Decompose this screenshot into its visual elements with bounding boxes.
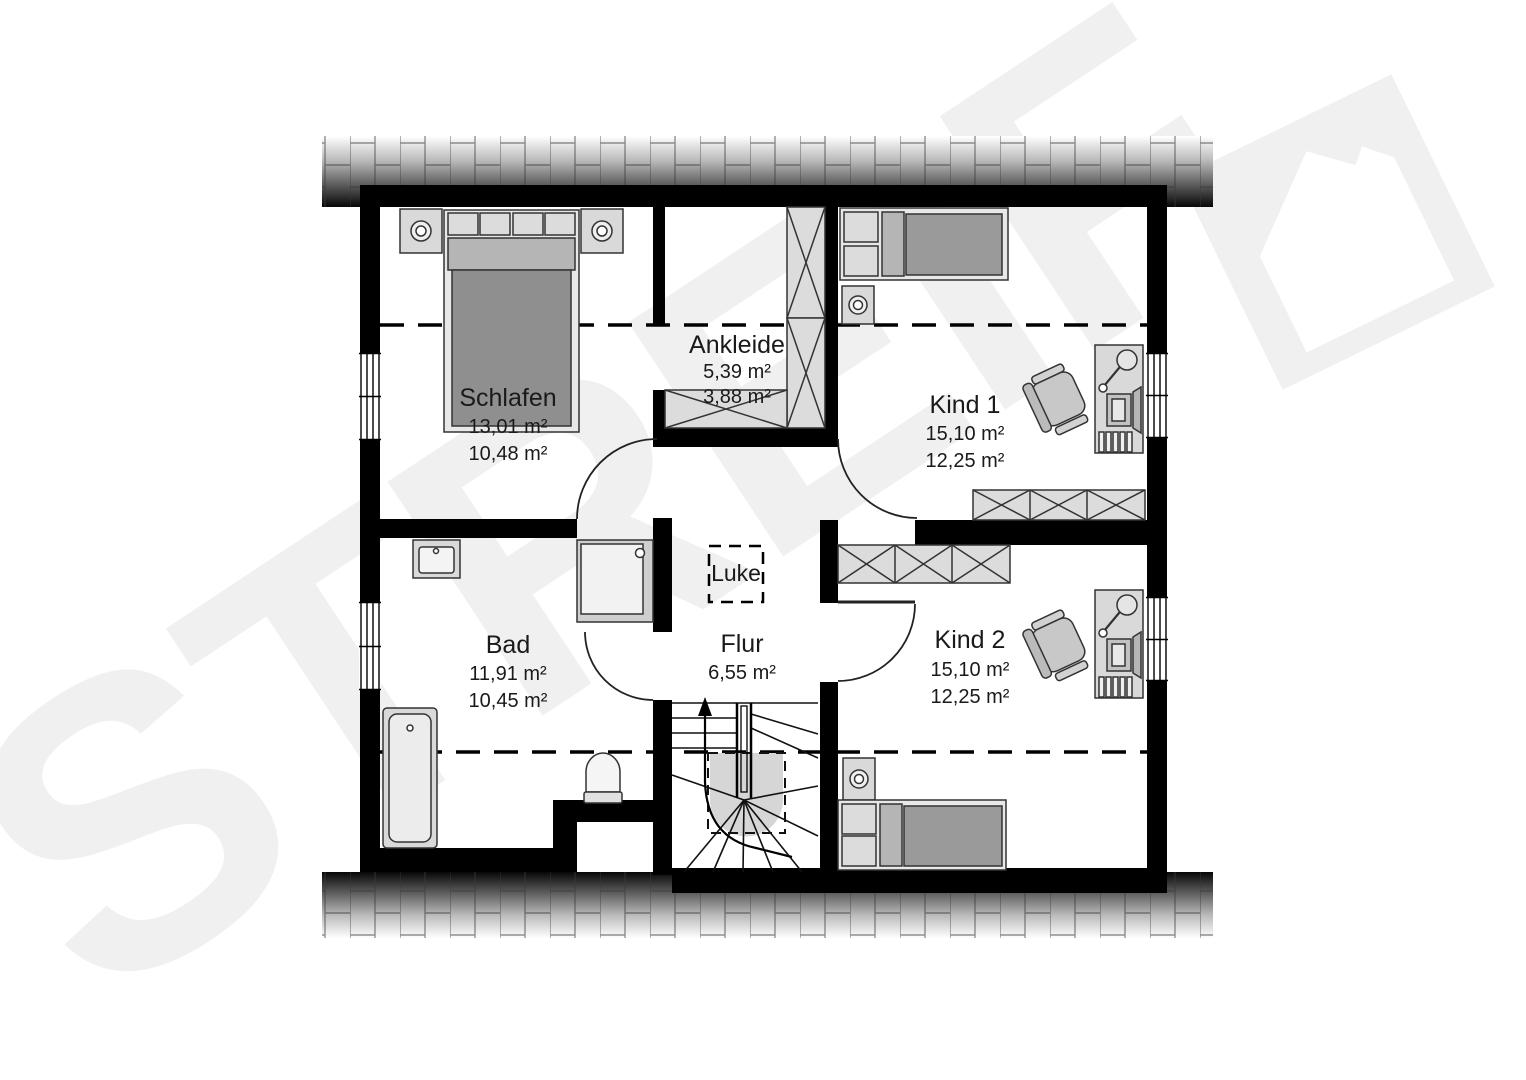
desk bbox=[1095, 590, 1143, 698]
room-name: Ankleide bbox=[689, 331, 785, 359]
room-label-kind2: Kind 2 15,10 m² 12,25 m² bbox=[931, 626, 1010, 708]
room-area-floor: 10,48 m² bbox=[469, 443, 548, 465]
window-kind1 bbox=[1146, 353, 1168, 438]
room-label-kind1: Kind 1 15,10 m² 12,25 m² bbox=[926, 391, 1005, 472]
floor-plan-drawing: STREIF bbox=[0, 0, 1526, 1080]
room-area-living: 15,10 m² bbox=[931, 659, 1010, 681]
single-bed bbox=[838, 800, 1006, 870]
window-schlafen bbox=[359, 353, 381, 440]
wall-flur-east-upper bbox=[820, 520, 838, 603]
single-bed bbox=[840, 208, 1008, 280]
sink bbox=[413, 540, 460, 578]
wall-schlafen-bad bbox=[360, 519, 577, 538]
desk-lamp-icon bbox=[1117, 595, 1137, 615]
wall-bad-bottom bbox=[360, 848, 577, 872]
wall-ankleide-bottom bbox=[653, 428, 838, 447]
wall-flur-west-upper bbox=[653, 518, 672, 632]
toilet bbox=[584, 753, 622, 803]
room-area-living: 11,91 m² bbox=[469, 663, 547, 685]
room-name: Bad bbox=[486, 631, 530, 659]
window-kind2 bbox=[1146, 597, 1168, 681]
nightstand bbox=[842, 286, 874, 324]
shower-drain-icon bbox=[636, 549, 645, 558]
shower bbox=[577, 540, 653, 622]
room-area-floor: 12,25 m² bbox=[931, 686, 1010, 708]
room-name: Schlafen bbox=[459, 384, 556, 412]
room-label-ankleide: Ankleide 5,39 m² 3,88 m² bbox=[689, 331, 785, 408]
nightstand-left bbox=[400, 209, 442, 253]
wall-top bbox=[360, 185, 1167, 207]
room-name: Kind 2 bbox=[935, 626, 1006, 654]
room-area-living: 13,01 m² bbox=[469, 416, 548, 438]
wall-flur-east-lower bbox=[820, 682, 838, 875]
wall-ankleide-west bbox=[653, 207, 665, 325]
room-area-living: 5,39 m² bbox=[703, 361, 771, 383]
nightstand bbox=[843, 758, 875, 800]
desk-lamp-icon bbox=[1117, 350, 1137, 370]
wardrobe bbox=[838, 545, 1010, 583]
faucet-icon bbox=[407, 725, 413, 731]
faucet-icon bbox=[434, 549, 439, 554]
room-area-living: 6,55 m² bbox=[708, 662, 776, 684]
bathtub bbox=[383, 708, 437, 848]
wall-kind1-kind2 bbox=[915, 520, 1147, 545]
floor-plan-page: STREIF bbox=[0, 0, 1526, 1080]
wall-flur-west-lower bbox=[653, 700, 672, 875]
room-area-floor: 3,88 m² bbox=[703, 386, 771, 408]
wall-bottom-east bbox=[672, 868, 1167, 893]
room-area-floor: 10,45 m² bbox=[469, 690, 548, 712]
wall-step-side bbox=[553, 822, 577, 848]
keyboard-icon bbox=[1099, 432, 1132, 452]
nightstand-right bbox=[581, 209, 623, 253]
wardrobe bbox=[973, 490, 1145, 520]
room-label-schlafen: Schlafen 13,01 m² 10,48 m² bbox=[459, 384, 556, 465]
luke-label: Luke bbox=[711, 560, 761, 586]
room-area-floor: 12,25 m² bbox=[926, 450, 1005, 472]
room-name: Kind 1 bbox=[930, 391, 1001, 419]
wall-right bbox=[1147, 185, 1167, 893]
desk bbox=[1095, 345, 1143, 453]
room-area-living: 15,10 m² bbox=[926, 423, 1005, 445]
wardrobe bbox=[787, 207, 825, 428]
room-name: Flur bbox=[720, 630, 763, 658]
keyboard-icon bbox=[1099, 677, 1132, 697]
window-bad bbox=[359, 602, 381, 690]
